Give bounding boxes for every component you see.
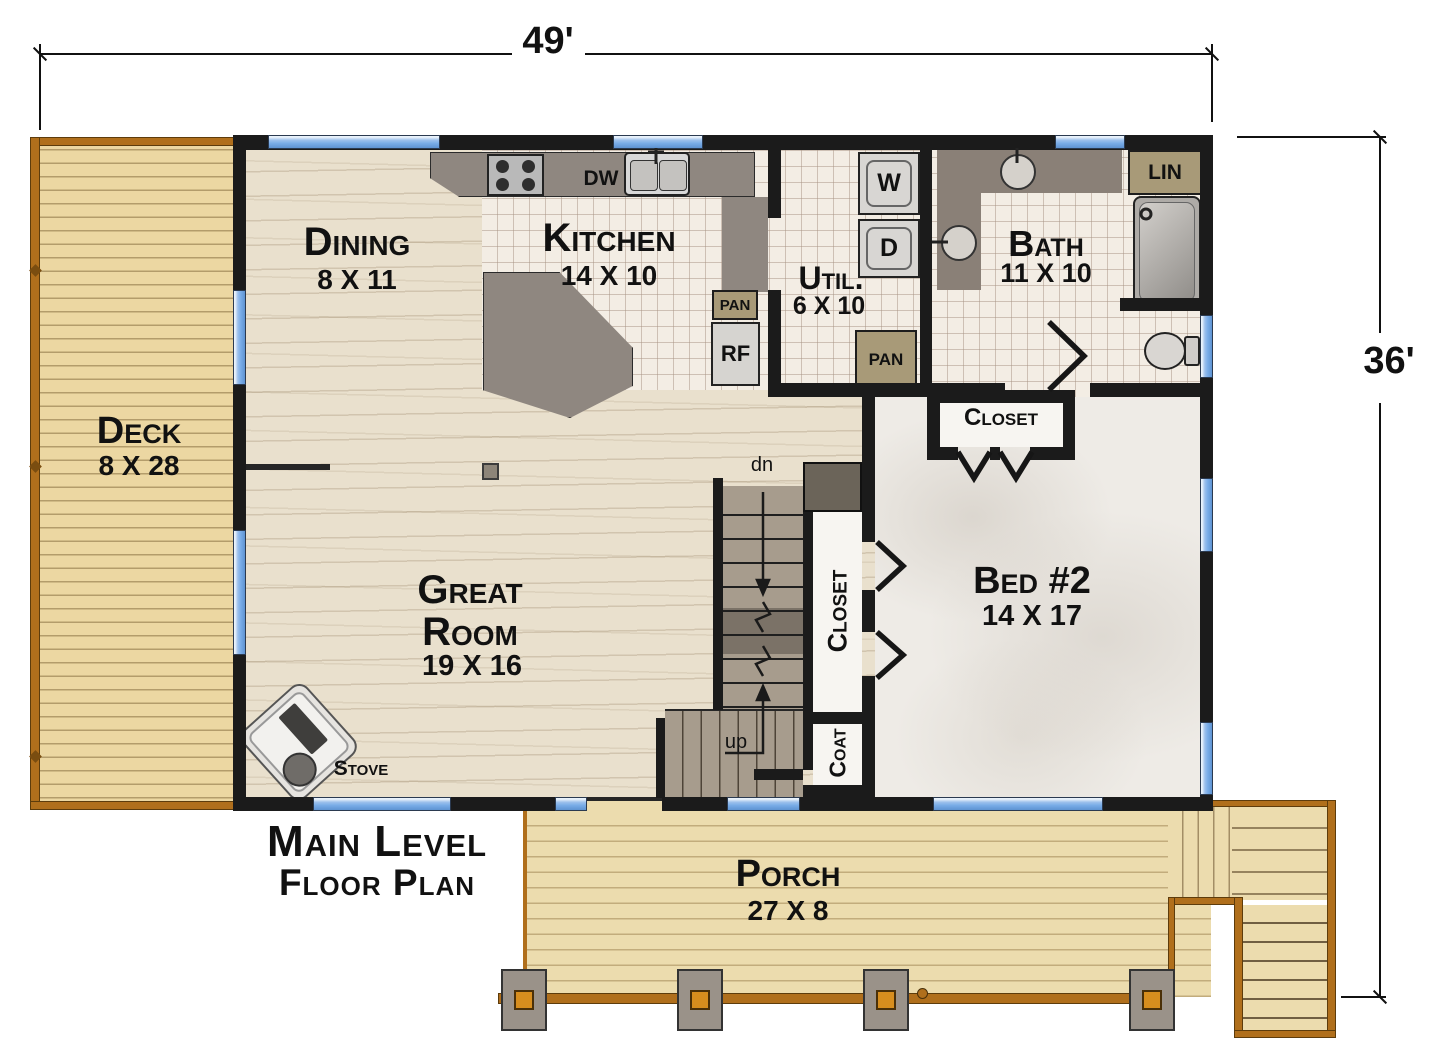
porch-label: Porch [736,855,841,893]
half-wall [587,797,662,801]
entry-door [727,797,800,811]
wall-segment [803,512,813,712]
dimension-line-top [585,53,1212,55]
wall-segment [803,712,875,724]
steps-railing [1234,897,1243,1037]
wall-segment [1030,447,1075,460]
bath-size: 11 X 10 [1000,260,1092,287]
stair-landing [665,710,803,798]
landing-planks [1168,807,1232,900]
deck-railing [30,137,40,810]
steps-railing [1234,1030,1336,1038]
coat-closet-label: Coat [827,728,850,777]
great-room-size: 19 X 16 [422,652,522,681]
bed2-label: Bed #2 [973,562,1091,600]
toilet-tank-icon [1184,336,1200,366]
plan-title-line2: Floor Plan [279,864,475,901]
stair-treads [723,492,803,708]
landing-railing [1168,897,1242,905]
wall-segment [927,390,1075,403]
kitchen-sink-icon [624,152,690,196]
wall-segment [656,718,665,798]
window [1055,135,1125,149]
dimension-line-top [40,53,512,55]
wall-segment [862,390,875,542]
window [613,135,703,149]
sliding-door [233,530,246,655]
plan-title-line1: Main Level [267,820,487,864]
window [555,797,587,811]
porch-post [863,969,909,1031]
wall-segment [920,148,932,397]
porch-post [677,969,723,1031]
height-dimension-label: 36' [1339,342,1439,380]
width-dimension-label: 49' [498,22,598,60]
washer-label: W [866,160,912,206]
bed2-size: 14 X 17 [982,602,1082,631]
chase [803,462,862,512]
wall-segment [1090,383,1213,397]
landing-edge [665,709,803,711]
wall-segment [990,447,1000,460]
bath-sink-icon [941,225,977,261]
landing-railing [1168,897,1175,972]
toilet-bowl-icon [1144,332,1186,370]
dishwasher-label: DW [584,168,619,189]
support-post [482,463,499,480]
window [233,290,246,385]
wall-segment [754,769,803,780]
wall-segment [862,676,875,798]
range-cooktop-icon [487,154,544,196]
hall-closet-label: Closet [825,570,852,653]
window [1200,722,1213,795]
extension-line [1237,136,1386,138]
kitchen-counter-return [722,197,768,292]
window [268,135,440,149]
wall-segment [862,590,875,632]
bath-label: Bath [1008,226,1084,262]
deck-railing [30,801,239,810]
refrigerator: RF [711,322,760,386]
window [1200,478,1213,552]
utility-pantry: PAN [855,330,917,389]
porch-size: 27 X 8 [748,897,829,925]
utility-label: Util. [799,262,864,294]
bathtub-icon [1133,196,1201,308]
window [313,797,451,811]
wall-segment [927,447,958,460]
wall-segment [233,135,246,811]
dining-label: Dining [304,222,411,262]
dimension-line-right [1379,137,1381,333]
porch-post [501,969,547,1031]
bath-sink-icon [1000,154,1036,190]
railing-knob [917,988,928,999]
utility-size: 6 X 10 [793,294,865,319]
deck-label: Deck [97,412,181,450]
great-room-label: Great [417,570,522,610]
porch-post [1129,969,1175,1031]
wall-segment [1120,298,1213,311]
dryer-label: D [866,227,912,271]
wall-segment [803,724,813,770]
dining-size: 8 X 11 [317,266,396,294]
wall-segment [803,785,875,797]
room-divider [246,464,330,470]
landing-railing [1327,800,1336,1037]
bed2-closet-label: Closet [964,406,1038,430]
deck-size: 8 X 28 [99,452,180,480]
great-room-label: Room [422,612,518,652]
wall-segment [768,290,781,397]
wall-segment [768,148,781,218]
window [1200,315,1213,378]
window [933,797,1103,811]
kitchen-pantry: PAN [712,290,758,320]
wall-segment [713,478,723,710]
floor-plan: 49' 36' [0,0,1440,1046]
landing-planks [1232,807,1332,900]
entry-steps [1243,905,1327,1033]
stairs-down-label: dn [751,455,773,475]
dryer-icon: D [858,219,920,278]
kitchen-size: 14 X 10 [561,262,658,290]
wall-segment [1200,135,1213,811]
dimension-line-right [1379,403,1381,997]
linen-closet: LIN [1128,150,1202,195]
kitchen-label: Kitchen [542,218,675,258]
stove-label: Stove [334,758,389,779]
washer-icon: W [858,152,920,215]
deck-railing [30,137,239,146]
stairs-up-label: up [725,732,747,752]
wall-segment [927,397,940,454]
porch-railing [498,993,1170,1004]
